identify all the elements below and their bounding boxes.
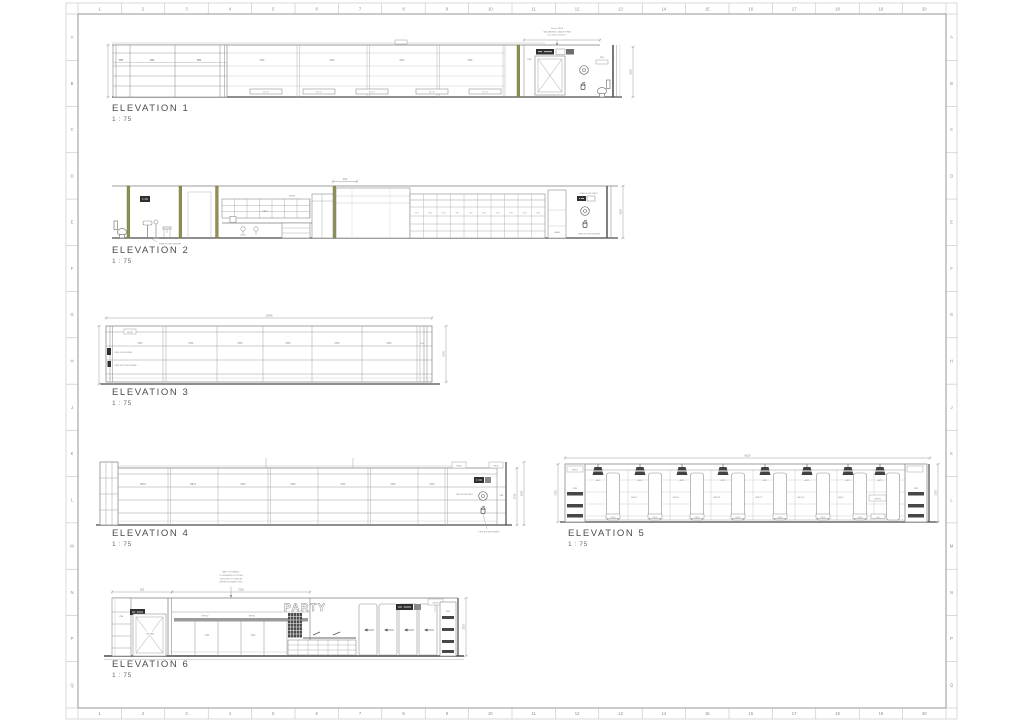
svg-text:PB6: PB6 (291, 483, 296, 486)
svg-text:12: 12 (575, 7, 580, 12)
svg-text:2700: 2700 (514, 493, 517, 499)
svg-text:2365: 2365 (238, 588, 244, 592)
elevation-2-title-block: ELEVATION 2 1 : 75 (112, 245, 189, 265)
svg-text:FIRE HOSE REEL: FIRE HOSE REEL (115, 352, 134, 354)
svg-text:PB6: PB6 (335, 342, 340, 345)
svg-text:P: P (71, 636, 74, 641)
svg-text:13: 13 (618, 7, 623, 12)
svg-text:SPGO: SPGO (572, 470, 578, 472)
elevation-6: PB1CPL GRDGPO30GPO11GS4GS4PARTYGPO12PB1P… (104, 571, 468, 660)
svg-text:FIRE EXTINGUISHER: FIRE EXTINGUISHER (115, 365, 137, 367)
svg-text:4: 4 (229, 711, 232, 716)
svg-text:19: 19 (879, 711, 884, 716)
svg-text:PB6: PB6 (391, 483, 396, 486)
svg-text:3000: 3000 (521, 490, 524, 496)
elevation-3-title: ELEVATION 3 (112, 387, 189, 398)
svg-text:EB03: EB03 (778, 517, 783, 519)
svg-text:PB2: PB2 (197, 59, 202, 62)
svg-text:ASPT2: ASPT2 (756, 496, 764, 499)
svg-text:GB1: GB1 (442, 213, 446, 215)
svg-text:20: 20 (922, 711, 927, 716)
elevation-2: CPK14PB12600GB1GB1GB1GB1GB1GB1GB1GB1GB1G… (112, 177, 625, 245)
svg-text:GB1: GB1 (523, 213, 527, 215)
elevation-1-title-block: ELEVATION 1 1 : 75 (112, 103, 189, 123)
svg-text:PB6: PB6 (238, 342, 243, 345)
svg-text:BCO2: BCO2 (482, 92, 489, 94)
svg-text:D: D (950, 173, 953, 178)
svg-text:PB6: PB6 (119, 60, 124, 62)
svg-text:PB6: PB6 (400, 59, 405, 62)
svg-text:ASP1: ASP1 (846, 479, 851, 482)
svg-text:PB12: PB12 (262, 211, 268, 213)
svg-text:FIRE HOSE REEL: FIRE HOSE REEL (580, 193, 599, 195)
svg-text:B: B (71, 81, 74, 86)
svg-text:BCO2: BCO2 (263, 92, 270, 94)
svg-text:GB1: GB1 (496, 213, 500, 215)
elevation-2-scale: 1 : 75 (112, 258, 189, 265)
elevation-5: 8525SPGOPB1ASDASD2ASP1ASP2ASDASPGASP1ASP… (555, 454, 941, 524)
svg-text:3000: 3000 (620, 209, 623, 215)
svg-text:Q: Q (950, 682, 954, 687)
svg-text:D: D (70, 173, 73, 178)
svg-text:PB2: PB2 (527, 59, 532, 61)
svg-text:GB1: GB1 (428, 213, 432, 215)
svg-text:L: L (71, 497, 74, 502)
svg-text:BCO2: BCO2 (429, 92, 436, 94)
svg-text:GPO21: GPO21 (127, 332, 133, 334)
elevation-6-title: ELEVATION 6 (112, 659, 189, 670)
svg-text:BCO2: BCO2 (316, 92, 323, 94)
svg-text:1: 1 (99, 7, 102, 12)
svg-text:PARTY SIGNAGE -: PARTY SIGNAGE - (222, 571, 240, 574)
elevation-2-title: ELEVATION 2 (112, 245, 189, 256)
svg-text:PB6: PB6 (150, 59, 155, 62)
svg-text:14: 14 (662, 711, 667, 716)
svg-text:F: F (950, 266, 953, 271)
svg-text:8: 8 (402, 711, 405, 716)
svg-text:K: K (71, 451, 74, 456)
svg-text:C: C (70, 127, 73, 132)
elevation-3: PB2PB6PB6PB6PB6PB6PB6GPO21FIRE HOSE REEL… (97, 314, 448, 386)
svg-text:8: 8 (402, 7, 405, 12)
svg-text:PB13: PB13 (190, 483, 197, 486)
svg-text:GALVANISED CABLE TRAY: GALVANISED CABLE TRAY (543, 30, 571, 33)
svg-text:ASP1: ASP1 (680, 479, 685, 482)
svg-text:A: A (950, 35, 953, 40)
svg-text:6: 6 (316, 711, 319, 716)
svg-text:FIRE EXTINGUISHER: FIRE EXTINGUISHER (479, 532, 500, 534)
svg-text:GB1: GB1 (455, 213, 459, 215)
svg-text:GB1: GB1 (415, 213, 419, 215)
svg-text:7: 7 (359, 711, 362, 716)
svg-text:P: P (950, 636, 953, 641)
svg-text:PB1: PB1 (600, 57, 605, 59)
svg-text:F: F (71, 266, 74, 271)
svg-text:9: 9 (446, 711, 449, 716)
svg-text:10: 10 (488, 711, 493, 716)
svg-text:2700: 2700 (935, 490, 938, 496)
svg-text:H: H (950, 359, 953, 364)
svg-text:EB03: EB03 (695, 517, 700, 519)
svg-text:PARTY: PARTY (284, 602, 326, 614)
svg-text:PB6: PB6 (341, 483, 346, 486)
svg-text:@ 2700mm A.F.F.L.: @ 2700mm A.F.F.L. (547, 34, 567, 37)
elevation-5-title: ELEVATION 5 (568, 528, 645, 539)
svg-text:M: M (950, 544, 954, 549)
svg-text:EB03: EB03 (736, 517, 741, 519)
svg-text:18: 18 (835, 711, 840, 716)
svg-text:ASD2: ASD2 (638, 479, 643, 482)
svg-text:3000: 3000 (463, 624, 466, 630)
svg-text:18: 18 (835, 7, 840, 12)
svg-text:1: 1 (99, 711, 102, 716)
svg-text:PB6: PB6 (260, 59, 265, 62)
svg-text:600: 600 (343, 177, 348, 181)
svg-text:2: 2 (142, 711, 145, 716)
svg-text:G: G (950, 312, 953, 317)
svg-text:PB2: PB2 (138, 342, 143, 345)
svg-text:19: 19 (879, 7, 884, 12)
svg-text:GB1: GB1 (469, 213, 473, 215)
elevation-5-scale: 1 : 75 (568, 541, 645, 548)
svg-text:PB6: PB6 (468, 59, 473, 62)
svg-text:GPOP2: GPOP2 (874, 499, 881, 501)
svg-text:G: G (70, 312, 73, 317)
drawing-sheet: 1122334455667788991010111112121313141415… (0, 0, 1024, 723)
svg-text:GB1: GB1 (482, 213, 486, 215)
svg-text:B: B (950, 81, 953, 86)
svg-text:11: 11 (532, 7, 537, 12)
svg-text:E: E (950, 220, 953, 225)
svg-text:C: C (950, 127, 953, 132)
svg-text:FIRE HOSE REEL: FIRE HOSE REEL (456, 494, 474, 496)
svg-text:PB6: PB6 (286, 342, 291, 345)
svg-text:7: 7 (359, 7, 362, 12)
svg-text:N: N (70, 590, 73, 595)
elevation-1-scale: 1 : 75 (112, 116, 189, 123)
svg-text:ASPG: ASPG (804, 479, 810, 482)
svg-text:Q: Q (70, 682, 74, 687)
svg-text:16: 16 (748, 7, 753, 12)
svg-text:PB6: PB6 (330, 59, 335, 62)
svg-text:M: M (70, 544, 74, 549)
svg-text:5: 5 (272, 7, 275, 12)
svg-text:FIRE EXTINGUISHER: FIRE EXTINGUISHER (578, 234, 600, 236)
svg-text:ASP3: ASP3 (878, 479, 883, 482)
svg-text:11: 11 (532, 711, 537, 716)
svg-text:ASPP1: ASPP1 (713, 496, 721, 499)
elevation-4-scale: 1 : 75 (112, 541, 189, 548)
svg-text:J: J (71, 405, 73, 410)
elevation-5-title-block: ELEVATION 5 1 : 75 (568, 528, 645, 548)
svg-text:GB03: GB03 (554, 232, 560, 234)
svg-text:ASD: ASD (596, 479, 601, 482)
elevation-3-title-block: ELEVATION 3 1 : 75 (112, 387, 189, 407)
elevation-6-scale: 1 : 75 (112, 672, 189, 679)
svg-text:ASP3: ASP3 (631, 496, 637, 499)
elevation-4: PB13PB13PB6PB6PB6PB6PB6GPO2GPO1FIRE HOSE… (96, 458, 526, 534)
elevation-6-title-block: ELEVATION 6 1 : 75 (112, 659, 189, 679)
svg-text:2400: 2400 (443, 351, 446, 357)
svg-text:ASPG2: ASPG2 (797, 496, 805, 499)
svg-text:20: 20 (922, 7, 927, 12)
svg-text:11890: 11890 (265, 314, 273, 318)
svg-text:ASP2: ASP2 (721, 479, 726, 482)
svg-text:ASPO: ASPO (673, 496, 679, 499)
svg-text:650: 650 (140, 588, 145, 592)
svg-text:4: 4 (229, 7, 232, 12)
svg-text:CPK14: CPK14 (289, 196, 296, 198)
svg-text:K: K (950, 451, 953, 456)
svg-text:ASP2: ASP2 (838, 496, 844, 499)
svg-text:GPO12: GPO12 (432, 602, 438, 604)
svg-text:16: 16 (748, 711, 753, 716)
svg-text:GB1: GB1 (509, 213, 513, 215)
svg-text:GS4: GS4 (251, 634, 256, 637)
svg-text:17: 17 (792, 711, 797, 716)
svg-text:3000: 3000 (630, 69, 633, 75)
svg-text:BCO2: BCO2 (369, 92, 376, 94)
svg-text:E: E (71, 220, 74, 225)
svg-text:14: 14 (662, 7, 667, 12)
svg-text:17: 17 (792, 7, 797, 12)
svg-text:A: A (71, 35, 74, 40)
svg-text:N: N (950, 590, 953, 595)
svg-text:EB03: EB03 (821, 517, 826, 519)
svg-text:EB03: EB03 (858, 517, 863, 519)
svg-text:PB13: PB13 (140, 483, 147, 486)
svg-text:EB03: EB03 (611, 517, 616, 519)
svg-text:8525: 8525 (745, 454, 751, 458)
svg-text:15: 15 (705, 711, 710, 716)
svg-text:50mm WIDE: 50mm WIDE (551, 28, 564, 30)
svg-text:GS4: GS4 (205, 634, 210, 637)
svg-text:15: 15 (705, 7, 710, 12)
svg-text:EB03: EB03 (653, 517, 658, 519)
svg-text:GPO1: GPO1 (493, 465, 498, 467)
svg-text:3: 3 (185, 711, 188, 716)
svg-text:2: 2 (142, 7, 145, 12)
svg-text:GPO30: GPO30 (202, 616, 210, 618)
svg-text:9: 9 (446, 7, 449, 12)
svg-text:PB1: PB1 (500, 495, 505, 497)
svg-text:GPO11: GPO11 (249, 616, 256, 618)
svg-text:2700: 2700 (555, 490, 558, 496)
svg-text:PB6: PB6 (387, 342, 392, 345)
svg-text:GPO2: GPO2 (456, 465, 461, 467)
elevation-3-scale: 1 : 75 (112, 400, 189, 407)
svg-text:PB6: PB6 (430, 483, 435, 486)
svg-text:J: J (950, 405, 952, 410)
svg-text:PB6: PB6 (241, 483, 246, 486)
svg-text:REFER SIGNAGE DWG: REFER SIGNAGE DWG (220, 581, 243, 584)
elevation-4-title: ELEVATION 4 (112, 528, 189, 539)
svg-text:EB2: EB2 (876, 517, 880, 519)
svg-text:ILLUMINATED LETTERS: ILLUMINATED LETTERS (219, 574, 243, 577)
svg-text:12: 12 (575, 711, 580, 716)
svg-text:ASD: ASD (763, 479, 768, 482)
svg-text:13: 13 (618, 711, 623, 716)
svg-text:MOUNTED TO FASCIA: MOUNTED TO FASCIA (220, 577, 242, 580)
svg-text:H: H (70, 359, 73, 364)
svg-text:GB1: GB1 (536, 213, 540, 215)
svg-text:PB6: PB6 (189, 342, 194, 345)
elevation-1: PB6PB6PB2PB6PB6PB6PB6BCO2BCO2BCO2BCO2BCO… (106, 28, 635, 98)
svg-text:CPL GRD: CPL GRD (146, 633, 155, 635)
svg-text:10: 10 (488, 7, 493, 12)
svg-text:5: 5 (272, 711, 275, 716)
svg-text:3: 3 (185, 7, 188, 12)
svg-text:6: 6 (316, 7, 319, 12)
elevation-4-title-block: ELEVATION 4 1 : 75 (112, 528, 189, 548)
elevation-1-title: ELEVATION 1 (112, 103, 189, 114)
svg-text:L: L (950, 497, 953, 502)
